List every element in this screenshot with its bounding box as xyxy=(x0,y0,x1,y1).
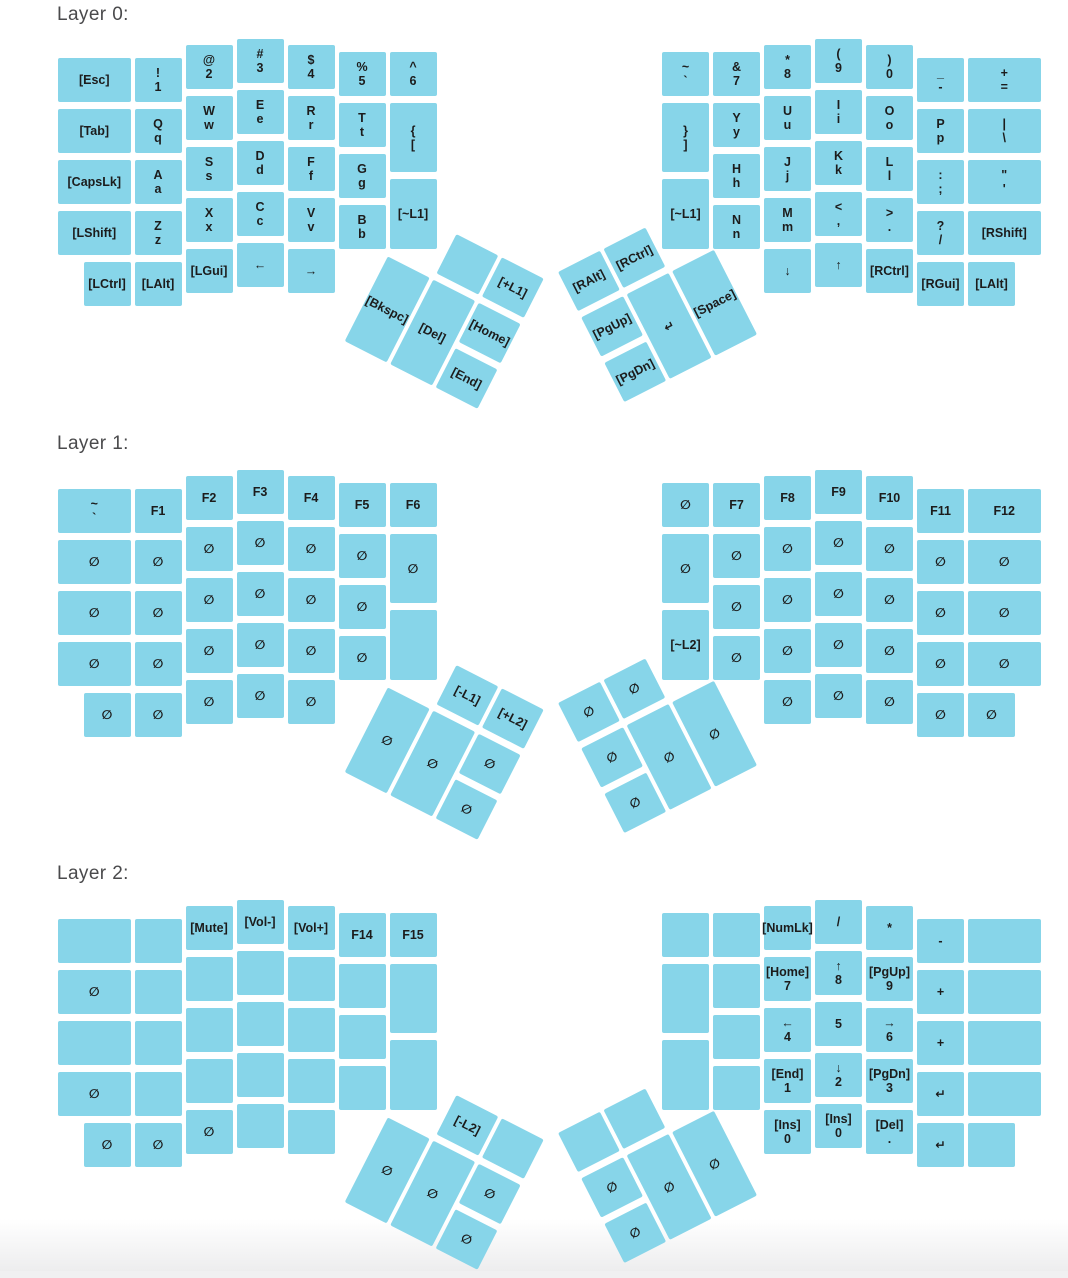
layer-1-title: Layer 1: xyxy=(57,433,129,455)
key-pgdn3: [PgDn]3 xyxy=(866,1059,913,1103)
key-f3: F3 xyxy=(237,470,284,514)
key-capslk: [CapsLk] xyxy=(58,160,131,204)
key-empty: ∅ xyxy=(866,629,913,673)
key-5: %5 xyxy=(339,52,386,96)
key-vol+: [Vol+] xyxy=(288,906,335,950)
key-~l2: [~L2] xyxy=(662,610,709,680)
key-mute: [Mute] xyxy=(186,906,233,950)
key--: _- xyxy=(917,58,964,102)
key-empty: ∅ xyxy=(390,534,437,604)
key-empty: ∅ xyxy=(968,591,1041,635)
key-esc: [Esc] xyxy=(58,58,131,102)
key-empty: ∅ xyxy=(288,629,335,673)
key-empty: ∅ xyxy=(866,527,913,571)
key-blank xyxy=(58,1021,131,1065)
key-7: &7 xyxy=(713,52,760,96)
key-symbol: }] xyxy=(662,103,709,173)
key-symbol: "' xyxy=(968,160,1041,204)
key-f6: F6 xyxy=(390,483,437,527)
key-rshift: [RShift] xyxy=(968,211,1041,255)
key-blank xyxy=(237,1104,284,1148)
key-arrow-right: → xyxy=(288,249,335,293)
key-f1: F1 xyxy=(135,489,182,533)
footer-strip xyxy=(0,1271,1068,1278)
key-empty: ∅ xyxy=(186,578,233,622)
key-empty: ∅ xyxy=(288,527,335,571)
key-empty: ∅ xyxy=(968,642,1041,686)
key-rr: Rr xyxy=(288,96,335,140)
key-empty: ∅ xyxy=(237,521,284,565)
layer-0-title: Layer 0: xyxy=(57,4,129,26)
key-empty: ∅ xyxy=(237,572,284,616)
key-empty: ∅ xyxy=(186,527,233,571)
key-9: (9 xyxy=(815,39,862,83)
key-empty: ∅ xyxy=(135,540,182,584)
key-blank xyxy=(186,1008,233,1052)
key-blank xyxy=(237,951,284,995)
key-empty: ∅ xyxy=(815,674,862,718)
key-empty: ∅ xyxy=(968,693,1015,737)
key-0: )0 xyxy=(866,45,913,89)
key-ii: Ii xyxy=(815,90,862,134)
key-f9: F9 xyxy=(815,470,862,514)
key-tt: Tt xyxy=(339,103,386,147)
key-empty: ∅ xyxy=(135,591,182,635)
key-dd: Dd xyxy=(237,141,284,185)
key-enter: ↵ xyxy=(917,1072,964,1116)
key-f14: F14 xyxy=(339,913,386,957)
key-~: ~` xyxy=(662,52,709,96)
key-1: !1 xyxy=(135,58,182,102)
key-empty: ∅ xyxy=(58,970,131,1014)
key-blank xyxy=(713,1066,760,1110)
key-blank xyxy=(662,964,709,1034)
key-blank xyxy=(237,1002,284,1046)
key-empty: ∅ xyxy=(84,1123,131,1167)
key-jj: Jj xyxy=(764,147,811,191)
key-symbol: / xyxy=(815,900,862,944)
key-empty: ∅ xyxy=(288,680,335,724)
key-empty: ∅ xyxy=(815,521,862,565)
key-lalt: [LAlt] xyxy=(968,262,1015,306)
key-empty: ∅ xyxy=(339,585,386,629)
key-empty: ∅ xyxy=(917,693,964,737)
key-bb: Bb xyxy=(339,205,386,249)
key-numlk: [NumLk] xyxy=(764,906,811,950)
key-cc: Cc xyxy=(237,192,284,236)
key-symbol: :; xyxy=(917,160,964,204)
key-ss: Ss xyxy=(186,147,233,191)
key-blank xyxy=(339,1015,386,1059)
key-symbol: * xyxy=(866,906,913,950)
key-symbol: >. xyxy=(866,198,913,242)
key-rctrl: [RCtrl] xyxy=(866,249,913,293)
key-f5: F5 xyxy=(339,483,386,527)
key--: - xyxy=(917,919,964,963)
key-empty: ∅ xyxy=(288,578,335,622)
footer-fade xyxy=(0,1219,1068,1271)
key-blank xyxy=(339,964,386,1008)
key-blank xyxy=(968,1021,1041,1065)
key-blank xyxy=(662,913,709,957)
key-xx: Xx xyxy=(186,198,233,242)
key-arrow-down: ↓ xyxy=(764,249,811,293)
key-lgui: [LGui] xyxy=(186,249,233,293)
key-ins0: [Ins]0 xyxy=(764,1110,811,1154)
key-blank xyxy=(135,1021,182,1065)
key-empty: ∅ xyxy=(58,1072,131,1116)
key-empty: ∅ xyxy=(84,693,131,737)
key-blank xyxy=(288,1110,335,1154)
key-f8: F8 xyxy=(764,476,811,520)
key-empty: ∅ xyxy=(764,527,811,571)
key-f4: F4 xyxy=(288,476,335,520)
key-empty: ∅ xyxy=(58,591,131,635)
key-empty: ∅ xyxy=(135,1123,182,1167)
key-empty: ∅ xyxy=(917,591,964,635)
key-aa: Aa xyxy=(135,160,182,204)
key-blank xyxy=(713,964,760,1008)
key-6: ^6 xyxy=(390,52,437,96)
key-f11: F11 xyxy=(917,489,964,533)
key-gg: Gg xyxy=(339,154,386,198)
key-empty: ∅ xyxy=(186,629,233,673)
key-pgup9: [PgUp]9 xyxy=(866,957,913,1001)
key-blank xyxy=(135,919,182,963)
key-blank xyxy=(58,919,131,963)
key-vol-: [Vol-] xyxy=(237,900,284,944)
key-empty: ∅ xyxy=(764,629,811,673)
key-blank xyxy=(288,1008,335,1052)
key-f12: F12 xyxy=(968,489,1041,533)
key-3: #3 xyxy=(237,39,284,83)
key-blank xyxy=(968,1072,1041,1116)
key-empty: ∅ xyxy=(135,642,182,686)
key-empty: ∅ xyxy=(662,483,709,527)
key-+: + xyxy=(917,970,964,1014)
key-f7: F7 xyxy=(713,483,760,527)
key-blank xyxy=(662,1040,709,1110)
key-blank xyxy=(186,957,233,1001)
key-ll: Ll xyxy=(866,147,913,191)
key-empty: ∅ xyxy=(917,642,964,686)
key-empty: ∅ xyxy=(866,680,913,724)
key-~: ~` xyxy=(58,489,131,533)
key-empty: ∅ xyxy=(662,534,709,604)
key-empty: ∅ xyxy=(764,680,811,724)
key-end1: [End]1 xyxy=(764,1059,811,1103)
key-empty: ∅ xyxy=(339,636,386,680)
key-arrow-down: ↓2 xyxy=(815,1053,862,1097)
key-del: [Del]. xyxy=(866,1110,913,1154)
key-arrow-up: ↑ xyxy=(815,243,862,287)
layer-2-title: Layer 2: xyxy=(57,863,129,885)
key-blank xyxy=(288,1059,335,1103)
key-hh: Hh xyxy=(713,154,760,198)
key-f10: F10 xyxy=(866,476,913,520)
key-empty: ∅ xyxy=(58,642,131,686)
key-4: $4 xyxy=(288,45,335,89)
key-ff: Ff xyxy=(288,147,335,191)
key-blank xyxy=(968,919,1041,963)
key-lshift: [LShift] xyxy=(58,211,131,255)
key-zz: Zz xyxy=(135,211,182,255)
key-ee: Ee xyxy=(237,90,284,134)
key-blank xyxy=(339,1066,386,1110)
key-ww: Ww xyxy=(186,96,233,140)
key-empty: ∅ xyxy=(186,1110,233,1154)
key-lalt: [LAlt] xyxy=(135,262,182,306)
key-arrow-right: →6 xyxy=(866,1008,913,1052)
key-empty: ∅ xyxy=(237,623,284,667)
key-symbol: <, xyxy=(815,192,862,236)
key-empty: ∅ xyxy=(815,572,862,616)
key-nn: Nn xyxy=(713,205,760,249)
key-empty: ∅ xyxy=(968,540,1041,584)
key-yy: Yy xyxy=(713,103,760,147)
keymap-page: Layer 0: Layer 1: Layer 2: [Esc]!1@2#3$4… xyxy=(0,0,1068,1278)
key-f2: F2 xyxy=(186,476,233,520)
key-empty: ∅ xyxy=(713,534,760,578)
key-empty: ∅ xyxy=(186,680,233,724)
key-5: 5 xyxy=(815,1002,862,1046)
key-blank xyxy=(390,964,437,1034)
key-vv: Vv xyxy=(288,198,335,242)
key-blank xyxy=(390,610,437,680)
key-tab: [Tab] xyxy=(58,109,131,153)
key-~l1: [~L1] xyxy=(390,179,437,249)
key-home7: [Home]7 xyxy=(764,957,811,1001)
key-kk: Kk xyxy=(815,141,862,185)
key-blank xyxy=(288,957,335,1001)
key-~l1: [~L1] xyxy=(662,179,709,249)
key-empty: ∅ xyxy=(58,540,131,584)
key-blank xyxy=(390,1040,437,1110)
key-blank xyxy=(968,1123,1015,1167)
key-empty: ∅ xyxy=(237,674,284,718)
key-empty: ∅ xyxy=(339,534,386,578)
key-+: += xyxy=(968,58,1041,102)
key-symbol: |\ xyxy=(968,109,1041,153)
key-blank xyxy=(713,1015,760,1059)
key-lctrl: [LCtrl] xyxy=(84,262,131,306)
key-qq: Qq xyxy=(135,109,182,153)
key-blank xyxy=(186,1059,233,1103)
key-mm: Mm xyxy=(764,198,811,242)
key-empty: ∅ xyxy=(917,540,964,584)
key-symbol: {[ xyxy=(390,103,437,173)
key-2: @2 xyxy=(186,45,233,89)
key-oo: Oo xyxy=(866,96,913,140)
key-arrow-up: ↑8 xyxy=(815,951,862,995)
key-blank xyxy=(135,970,182,1014)
key-rgui: [RGui] xyxy=(917,262,964,306)
key-8: *8 xyxy=(764,45,811,89)
key-blank xyxy=(135,1072,182,1116)
key-blank xyxy=(968,970,1041,1014)
key-empty: ∅ xyxy=(713,636,760,680)
key-enter: ↵ xyxy=(917,1123,964,1167)
key-arrow-left: ← xyxy=(237,243,284,287)
key-blank xyxy=(713,913,760,957)
key-symbol: ?/ xyxy=(917,211,964,255)
key-arrow-left: ←4 xyxy=(764,1008,811,1052)
key-empty: ∅ xyxy=(764,578,811,622)
key-pp: Pp xyxy=(917,109,964,153)
key-blank xyxy=(237,1053,284,1097)
key-+: + xyxy=(917,1021,964,1065)
key-empty: ∅ xyxy=(815,623,862,667)
key-uu: Uu xyxy=(764,96,811,140)
key-empty: ∅ xyxy=(713,585,760,629)
key-empty: ∅ xyxy=(135,693,182,737)
key-ins0: [Ins]0 xyxy=(815,1104,862,1148)
key-f15: F15 xyxy=(390,913,437,957)
key-empty: ∅ xyxy=(866,578,913,622)
